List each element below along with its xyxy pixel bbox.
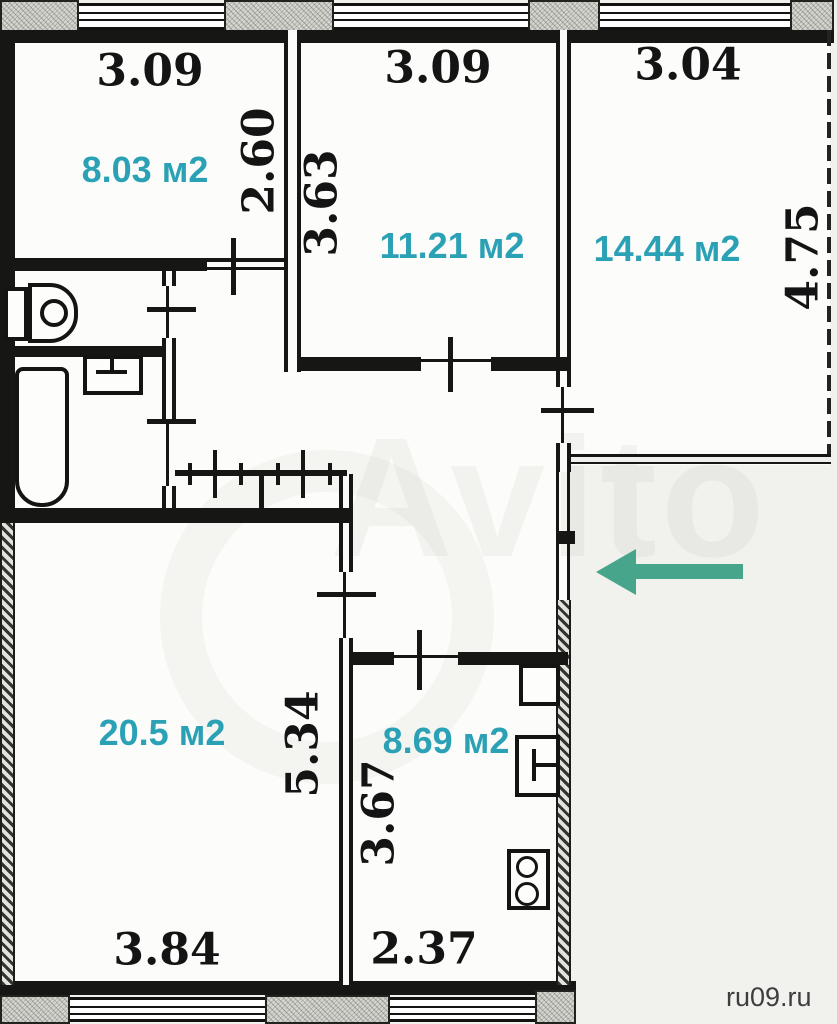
wall-pier (535, 990, 576, 1024)
closet-door-tick (239, 463, 243, 485)
living-door-opening (343, 572, 346, 638)
room1-door-tick (231, 238, 236, 295)
kitchen-sink-icon (519, 664, 560, 706)
closet-door-tick (213, 450, 217, 498)
outer-wall-left-hatched (0, 522, 15, 985)
dim-room2-width: 3.09 (384, 43, 491, 94)
wc-door-opening (166, 286, 169, 338)
toilet-tank-icon (4, 287, 28, 341)
site-watermark: ru09.ru (726, 982, 812, 1013)
room2-door-opening (421, 359, 491, 362)
dim-living-depth: 5.34 (278, 690, 329, 797)
dim-kitchen-depth: 3.67 (354, 759, 405, 866)
dim-room3-width: 3.04 (634, 40, 741, 91)
bathroom-wall-segment (162, 338, 176, 423)
floor-plan-canvas: Avito (0, 0, 837, 1024)
dim-living-width: 3.84 (113, 925, 220, 976)
arrow-shaft (633, 564, 743, 579)
bathroom-door-tick (147, 419, 196, 424)
wall-pier (790, 0, 834, 32)
stove-burner (516, 856, 538, 878)
closet-divider (259, 476, 264, 510)
room3-door-opening (561, 387, 564, 443)
wall-living-kitchen (339, 638, 353, 985)
room1-door-opening (207, 258, 284, 262)
living-area-label: 20.5 м2 (99, 712, 226, 754)
closet-door-tick (301, 450, 305, 498)
wc-door-tick (147, 307, 196, 312)
wall-pier (224, 0, 334, 32)
wall-living-hall (339, 474, 353, 572)
room3-area-label: 14.44 м2 (594, 228, 741, 270)
closet-door-tick (328, 463, 332, 485)
room3-bottom-wall (565, 454, 831, 464)
outer-wall-right-segment (556, 443, 571, 472)
stove-burner (515, 882, 539, 906)
room2-door-tick (448, 337, 453, 392)
sink-tap-bar (96, 370, 127, 374)
wall-pier (528, 0, 600, 32)
counter-tap-stem (536, 763, 558, 767)
window-symbol (70, 997, 265, 1022)
bathroom-wall-segment (162, 270, 176, 286)
room1-bottom-wall (15, 258, 207, 271)
living-door-tick (317, 592, 376, 597)
kitchen-area-label: 8.69 м2 (383, 720, 510, 762)
outer-wall-bottom (0, 981, 576, 995)
room1-area-label: 8.03 м2 (82, 149, 209, 191)
room2-area-label: 11.21 м2 (380, 225, 525, 267)
dim-kitchen-width: 2.37 (370, 924, 477, 975)
kitchen-top-wall (352, 652, 394, 665)
bathtub-icon (15, 367, 69, 507)
closet-door-tick (188, 463, 192, 485)
room2-bottom-wall (301, 357, 421, 371)
living-top-wall (0, 508, 353, 523)
entrance-arrow-icon (596, 549, 744, 595)
wall-pier (265, 995, 390, 1024)
window-symbol (79, 3, 224, 30)
wall-pier (0, 995, 70, 1024)
room1-door-opening (207, 267, 284, 270)
wall-room2-room3 (556, 30, 571, 387)
kitchen-door-tick (417, 630, 422, 690)
window-symbol (390, 997, 535, 1022)
bathroom-door-opening (166, 423, 169, 486)
dim-room3-depth: 4.75 (778, 203, 829, 310)
entrance-door-stub (559, 531, 575, 544)
room2-bottom-wall (491, 357, 571, 371)
window-symbol (600, 3, 790, 30)
window-symbol (334, 3, 528, 30)
kitchen-door-opening (394, 655, 458, 658)
closet-door-tick (276, 463, 280, 485)
room3-door-tick (541, 408, 594, 413)
dim-room1-depth: 2.60 (234, 107, 285, 214)
dim-room2-depth: 3.63 (297, 149, 348, 256)
dim-room1-width: 3.09 (96, 46, 203, 97)
wall-pier (0, 0, 79, 32)
arrow-head (596, 549, 636, 595)
toilet-bowl-circle (40, 299, 68, 327)
outer-wall-left (0, 30, 15, 522)
